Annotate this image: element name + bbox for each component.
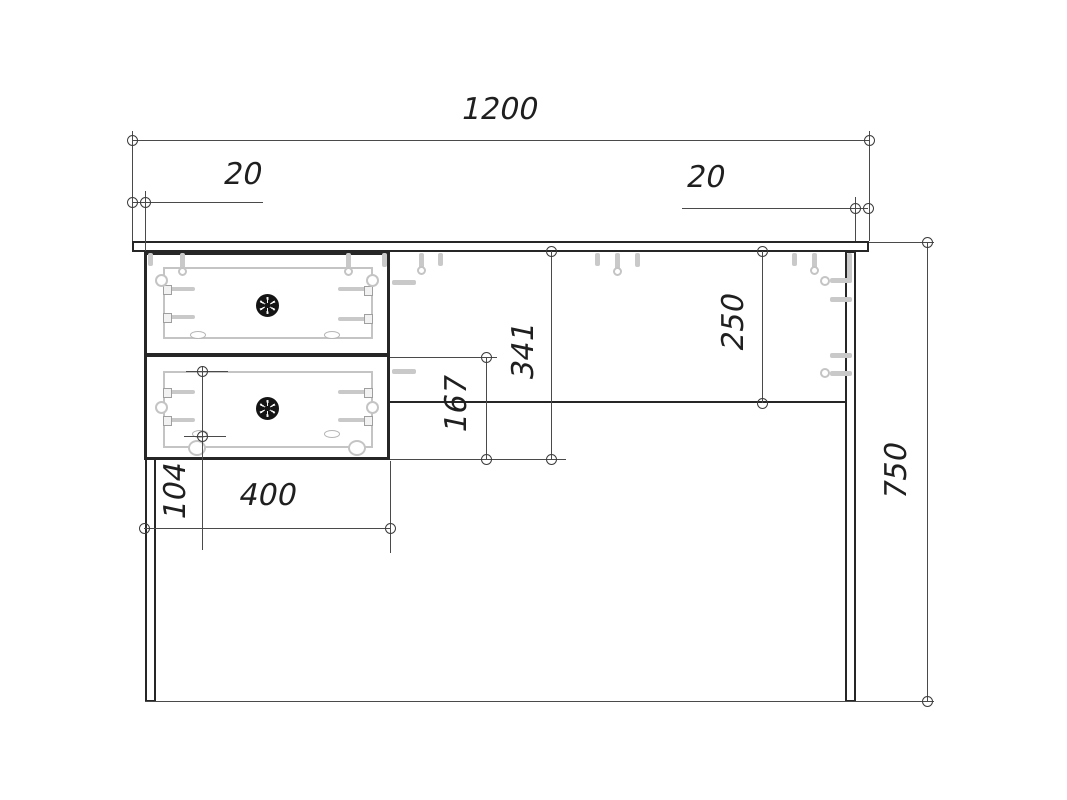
screw-head-icon (417, 266, 426, 275)
dim-label-slide-offset: 104 (161, 459, 191, 523)
dimension-line (132, 202, 263, 203)
cam-fitting-icon (830, 353, 852, 358)
dim-terminator-circle (546, 454, 557, 465)
dowel-icon (438, 253, 443, 266)
dim-terminator-circle (481, 454, 492, 465)
extension-line (869, 131, 870, 241)
dim-terminator-circle (197, 431, 208, 442)
slide-rail-icon (338, 390, 366, 394)
dim-terminator-circle (922, 696, 933, 707)
roller-icon (324, 331, 340, 339)
dowel-icon (635, 253, 640, 267)
dim-label-lower-drawer-height: 167 (442, 372, 472, 436)
dimension-line (486, 357, 487, 459)
dimension-line (144, 528, 390, 529)
roller-icon (366, 401, 379, 414)
dowel-icon (148, 253, 153, 266)
extension-line (390, 459, 566, 460)
extension-line (202, 366, 203, 550)
bracket-icon (163, 285, 172, 295)
bracket-icon (364, 388, 373, 398)
technical-drawing-canvas: 1200 20 20 750 341 167 250 (0, 0, 1067, 800)
dimension-line (927, 242, 928, 701)
dowel-icon (382, 253, 387, 267)
drawer-knob-icon (256, 294, 279, 317)
screw-head-icon (613, 267, 622, 276)
bracket-icon (163, 416, 172, 426)
dim-terminator-circle (127, 135, 138, 146)
slide-rail-icon (392, 280, 416, 285)
roller-icon (188, 440, 206, 456)
dimension-line (551, 251, 552, 459)
dowel-icon (792, 253, 797, 266)
roller-icon (324, 430, 340, 438)
screw-head-icon (178, 267, 187, 276)
dim-label-right-overhang: 20 (684, 163, 729, 193)
bracket-icon (364, 416, 373, 426)
extension-line (132, 131, 133, 241)
dim-label-overall-width: 1200 (459, 95, 542, 125)
bracket-icon (163, 313, 172, 323)
dim-terminator-circle (757, 398, 768, 409)
dowel-icon (595, 253, 600, 266)
roller-icon (155, 274, 168, 287)
cam-fitting-icon (830, 278, 852, 283)
dim-label-overall-height: 750 (882, 439, 912, 503)
dim-terminator-circle (481, 352, 492, 363)
bracket-icon (364, 314, 373, 324)
dim-terminator-circle (757, 246, 768, 257)
screw-head-icon (344, 267, 353, 276)
dim-terminator-circle (863, 203, 874, 214)
slide-rail-icon (338, 317, 366, 321)
bracket-icon (364, 286, 373, 296)
dim-terminator-circle (127, 197, 138, 208)
roller-icon (155, 401, 168, 414)
drawer-knob-icon (256, 397, 279, 420)
right-side-panel (845, 251, 856, 702)
dim-terminator-circle (197, 366, 208, 377)
roller-icon (348, 440, 366, 456)
roller-icon (190, 331, 206, 339)
slide-rail-icon (338, 287, 366, 291)
slide-rail-icon (338, 418, 366, 422)
dim-label-drawer-stack-height: 341 (509, 319, 539, 383)
extension-line (390, 461, 391, 553)
bracket-icon (163, 388, 172, 398)
dimension-line (762, 251, 763, 403)
dimension-line (682, 208, 868, 209)
dim-terminator-circle (864, 135, 875, 146)
dim-label-drawer-front-width: 400 (236, 481, 300, 511)
cam-fitting-icon (830, 297, 852, 302)
floor-extension-line (145, 701, 934, 702)
dim-terminator-circle (922, 237, 933, 248)
cam-fitting-icon (830, 371, 852, 376)
cam-fitting-icon (820, 276, 830, 286)
dim-terminator-circle (850, 203, 861, 214)
cam-fitting-icon (820, 368, 830, 378)
dim-terminator-circle (140, 197, 151, 208)
roller-icon (366, 274, 379, 287)
drawer-divider (144, 353, 390, 357)
slide-rail-icon (392, 369, 416, 374)
dim-terminator-circle (546, 246, 557, 257)
dim-terminator-circle (139, 523, 150, 534)
dimension-line (132, 140, 869, 141)
screw-head-icon (810, 266, 819, 275)
dim-label-left-overhang: 20 (221, 160, 266, 190)
dim-terminator-circle (385, 523, 396, 534)
dim-label-back-apron-height: 250 (719, 290, 749, 354)
